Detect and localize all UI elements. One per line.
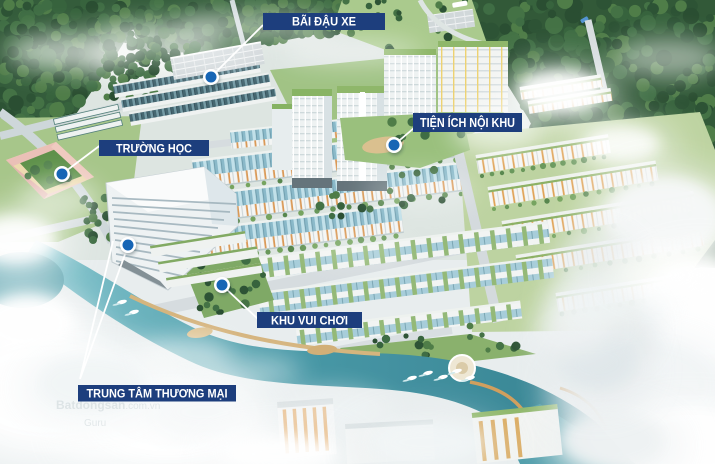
svg-text:TIỆN ÍCH NỘI KHU: TIỆN ÍCH NỘI KHU xyxy=(420,115,515,130)
svg-text:TRUNG TÂM THƯƠNG MẠI: TRUNG TÂM THƯƠNG MẠI xyxy=(87,387,228,400)
svg-text:TRƯỜNG HỌC: TRƯỜNG HỌC xyxy=(116,140,192,155)
svg-text:Guru: Guru xyxy=(84,418,106,429)
svg-text:KHU VUI CHƠI: KHU VUI CHƠI xyxy=(271,313,348,327)
svg-text:BÃI ĐẬU XE: BÃI ĐẬU XE xyxy=(292,16,356,29)
